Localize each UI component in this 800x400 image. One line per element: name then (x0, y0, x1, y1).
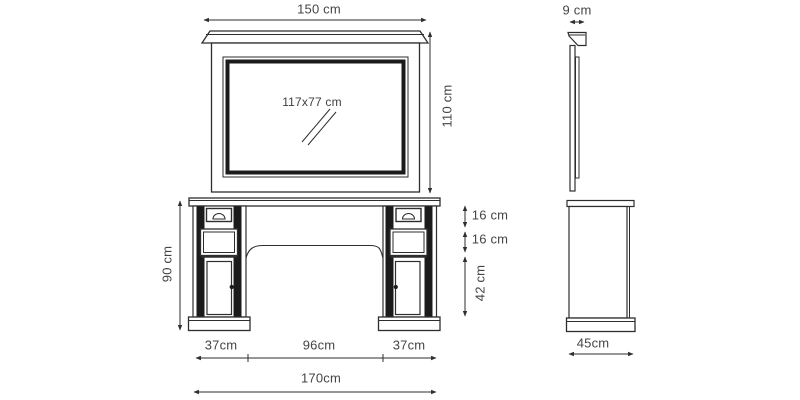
dim-label-console-height: 90 cm (160, 246, 175, 282)
dim-line-pedestal-widths (196, 354, 436, 362)
console-side-plinth (567, 318, 636, 332)
mirror-side-board (570, 46, 575, 192)
dim-label-mirror-width: 150 cm (297, 2, 341, 17)
mirror-side-glass (576, 57, 580, 178)
left-top-drawer (207, 209, 232, 222)
console-front-view (180, 198, 465, 392)
diagram-canvas: 150 cm 110 cm 117x77 cm 9 cm 90 cm 16 cm… (0, 0, 800, 400)
mirror-side-view (568, 22, 586, 191)
left-pedestal-left-stile (197, 207, 205, 317)
console-side-body (569, 207, 627, 319)
dim-label-pedestal-left-width: 37cm (205, 338, 238, 353)
left-pedestal-right-stile (234, 207, 242, 317)
mirror-frame (212, 43, 420, 192)
left-middle-drawer (201, 229, 238, 257)
dim-label-knee-space-width: 96cm (303, 338, 336, 353)
left-plinth (189, 317, 251, 331)
mirror-cornice (202, 31, 428, 43)
dim-label-drawer-middle: 16 cm (472, 232, 508, 247)
right-plinth (379, 317, 441, 331)
dim-label-door-height: 42 cm (473, 265, 488, 301)
left-door (207, 262, 234, 315)
right-middle-drawer (390, 229, 427, 257)
console-side-view (567, 201, 636, 355)
dim-label-console-depth: 45cm (577, 336, 610, 351)
mirror-side-cornice (568, 33, 586, 46)
console-apron (246, 246, 383, 259)
console-left-pedestal (189, 206, 251, 331)
right-pedestal-right-stile (425, 207, 433, 317)
console-right-pedestal (379, 206, 441, 331)
dim-label-mirror-height: 110 cm (440, 85, 455, 128)
console-tabletop (189, 198, 440, 206)
right-pedestal-left-stile (386, 207, 394, 317)
right-door (394, 262, 420, 315)
right-top-drawer (396, 209, 421, 222)
dim-label-mirror-depth: 9 cm (563, 3, 592, 18)
dim-label-drawer-top: 16 cm (472, 208, 508, 223)
dim-label-console-total-width: 170cm (301, 371, 341, 386)
right-door-knob (394, 285, 398, 289)
dim-label-mirror-glass: 117x77 cm (282, 95, 342, 109)
dim-label-pedestal-right-width: 37cm (393, 338, 426, 353)
left-door-knob (230, 285, 234, 289)
console-side-tabletop (567, 201, 634, 207)
